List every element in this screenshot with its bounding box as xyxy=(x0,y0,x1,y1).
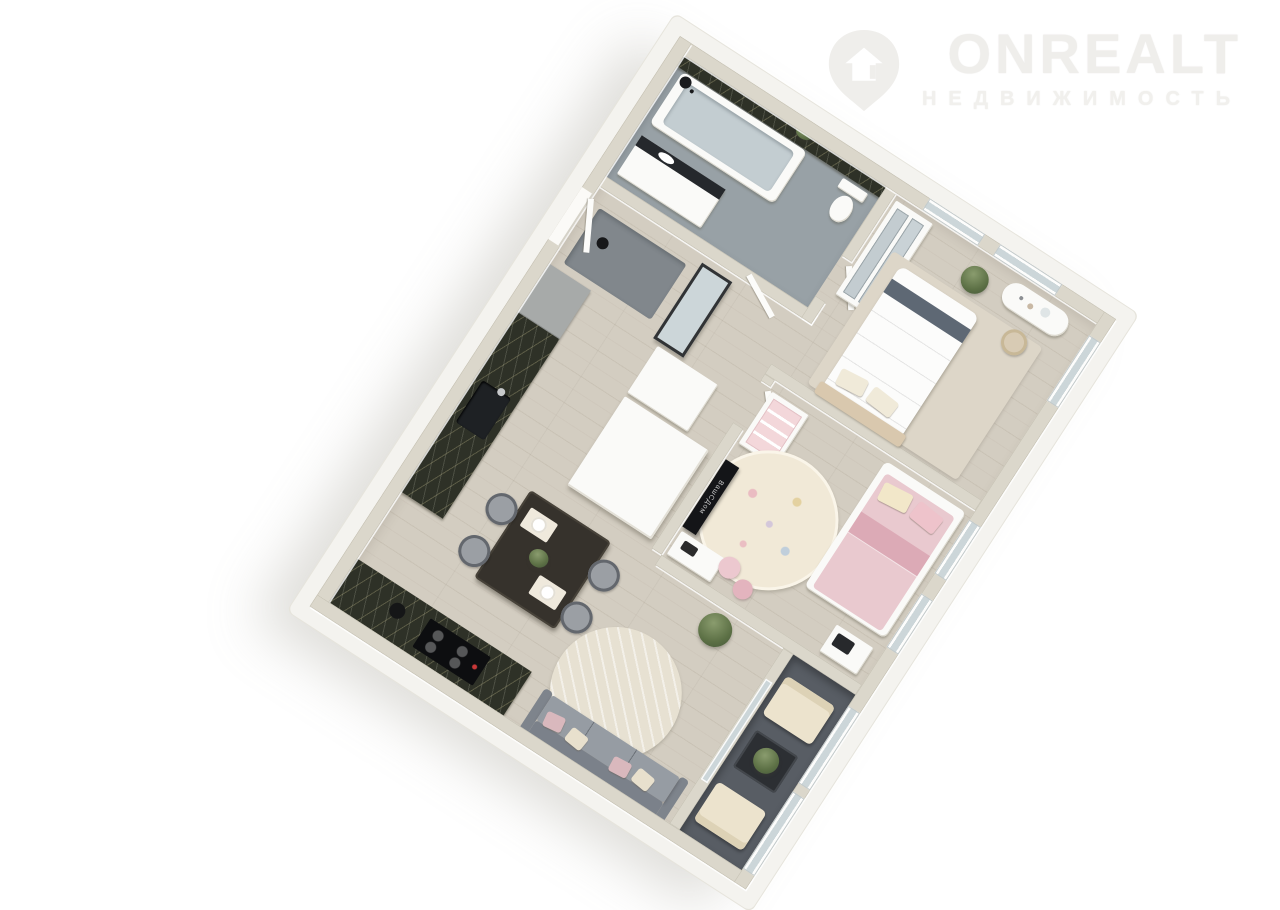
apartment-floorplan: ВашСДом xyxy=(310,36,1116,890)
house-pin-icon xyxy=(822,26,906,118)
watermark-text-block: ONREALT НЕДВИЖИМОСТЬ xyxy=(922,26,1242,111)
brand-tagline: НЕДВИЖИМОСТЬ xyxy=(922,88,1242,111)
watermark-logo: ONREALT НЕДВИЖИМОСТЬ xyxy=(822,26,1242,118)
brand-name: ONREALT xyxy=(948,26,1243,82)
